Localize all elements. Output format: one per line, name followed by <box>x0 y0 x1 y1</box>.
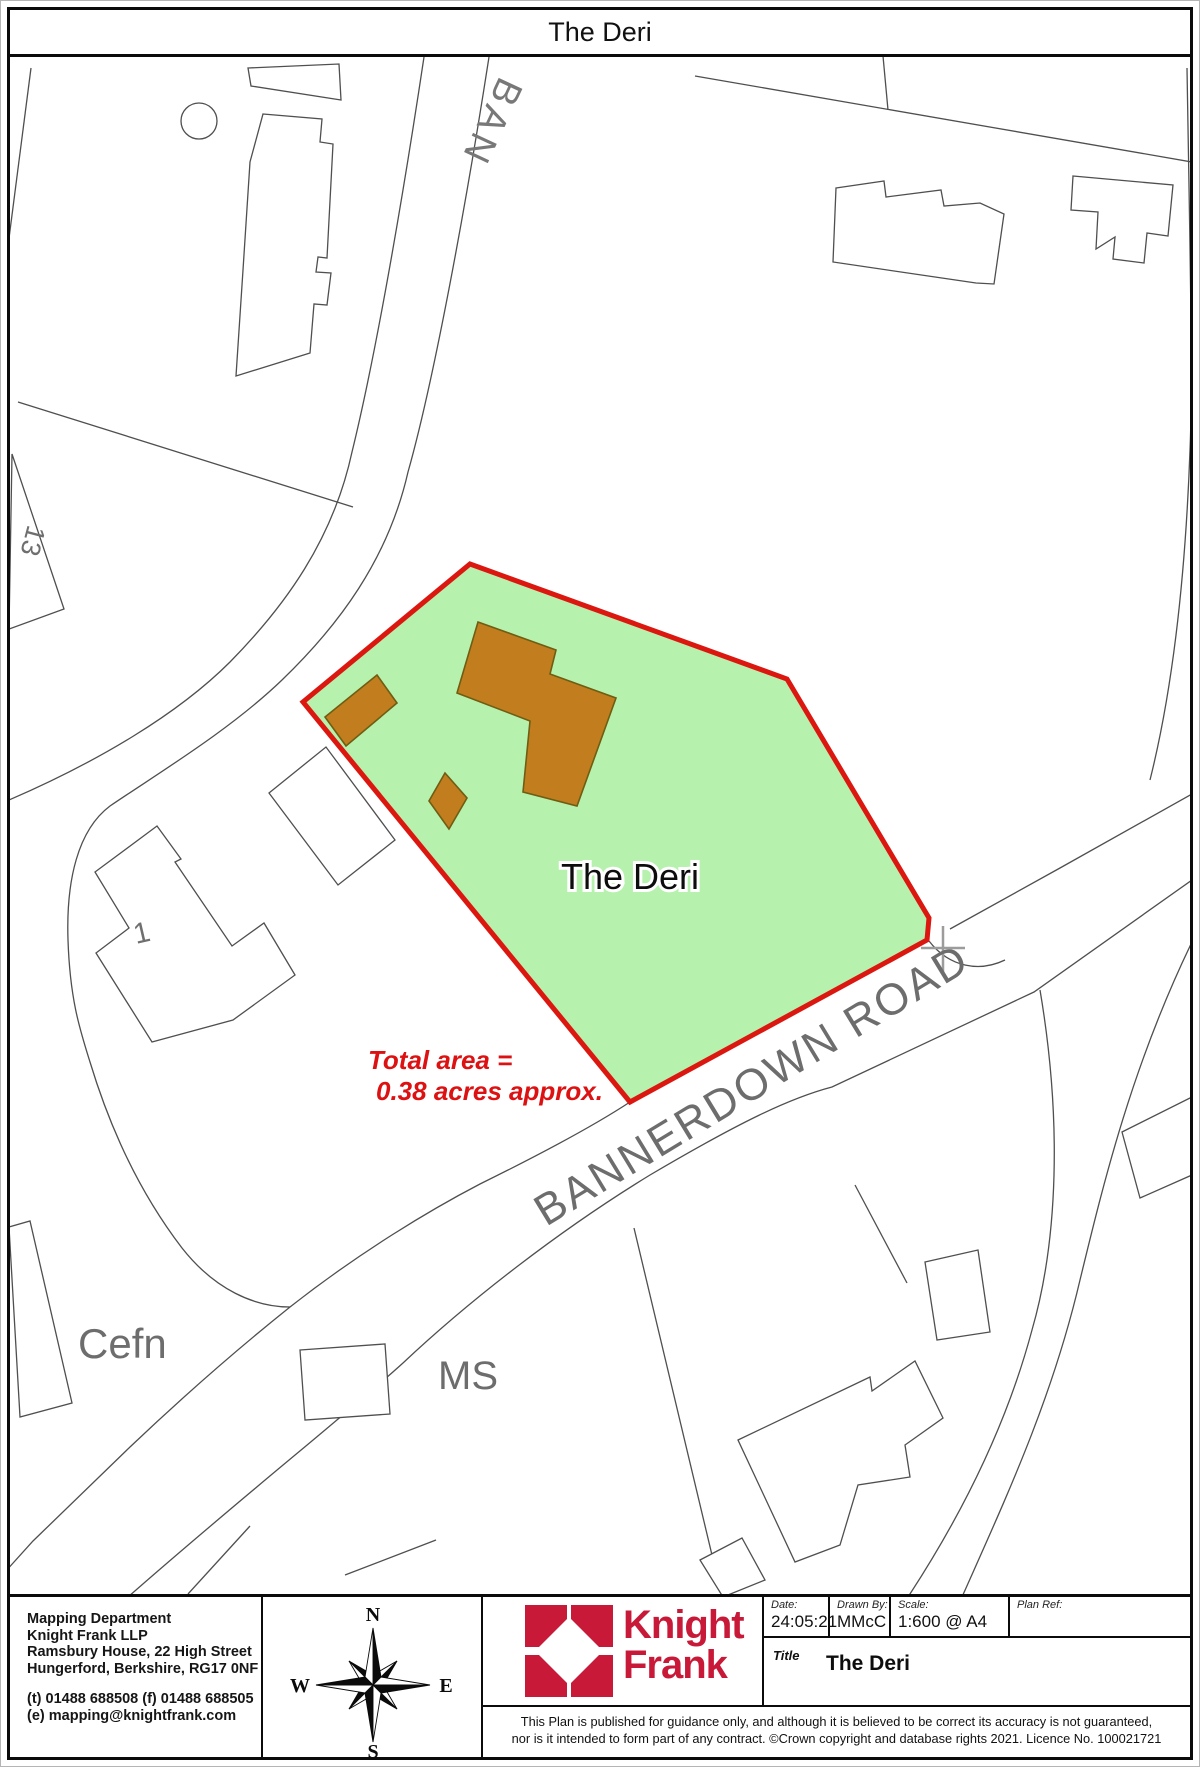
plan-info-row: Date: 24:05:21 Drawn By: MMcC Scale: 1:6… <box>764 1597 1190 1638</box>
disclaimer-line1: This Plan is published for guidance only… <box>483 1713 1190 1730</box>
date-label: Date: <box>771 1599 828 1611</box>
address-line: Hungerford, Berkshire, RG17 0NF <box>27 1661 261 1678</box>
title-field-label: Title <box>773 1648 800 1663</box>
drawn-by-label: Drawn By: <box>837 1599 889 1611</box>
compass-n-label: N <box>366 1604 381 1626</box>
disclaimer: This Plan is published for guidance only… <box>483 1705 1190 1760</box>
date-value: 24:05:21 <box>771 1612 828 1632</box>
footer-right: Knight Frank Date: 24:05:21 Drawn By: MM… <box>483 1597 1190 1760</box>
scale-label: Scale: <box>898 1599 1008 1611</box>
contact-line: (t) 01488 688508 (f) 01488 688505 <box>27 1691 261 1708</box>
disclaimer-line2: nor is it intended to form part of any c… <box>483 1730 1190 1747</box>
scale-field: Scale: 1:600 @ A4 <box>891 1597 1010 1636</box>
address-line: Ramsbury House, 22 High Street <box>27 1644 261 1661</box>
compass-w-label: W <box>290 1675 310 1697</box>
mapping-department-address: Mapping Department Knight Frank LLP Rams… <box>10 1597 263 1760</box>
site-plan-map: BAN 13 1 The Deri Total area = 0.38 acre… <box>10 57 1190 1594</box>
house-1-outline <box>95 826 295 1042</box>
address-gap <box>27 1677 261 1691</box>
property-name-label: The Deri <box>561 856 699 897</box>
address-line: Knight Frank LLP <box>27 1628 261 1645</box>
knight-frank-mark-icon <box>525 1605 613 1697</box>
total-area-line2: 0.38 acres approx. <box>376 1076 603 1106</box>
logo-line2: Frank <box>623 1645 744 1685</box>
knight-frank-logo: Knight Frank <box>483 1597 764 1705</box>
drawn-by-value: MMcC <box>837 1612 889 1632</box>
compass-rose-icon: N S E W <box>263 1597 483 1759</box>
date-field: Date: 24:05:21 <box>764 1597 830 1636</box>
address-line: Mapping Department <box>27 1611 261 1628</box>
map-area: BAN 13 1 The Deri Total area = 0.38 acre… <box>10 57 1190 1594</box>
compass-e-label: E <box>439 1675 452 1697</box>
footer: Mapping Department Knight Frank LLP Rams… <box>10 1594 1190 1760</box>
plan-info-table: Date: 24:05:21 Drawn By: MMcC Scale: 1:6… <box>764 1597 1190 1705</box>
drawn-by-field: Drawn By: MMcC <box>830 1597 891 1636</box>
scale-value: 1:600 @ A4 <box>898 1612 1008 1632</box>
plan-page: BAN 13 1 The Deri Total area = 0.38 acre… <box>0 0 1200 1767</box>
tree-circle <box>181 103 217 139</box>
total-area-line1: Total area = <box>368 1045 512 1075</box>
plan-ref-label: Plan Ref: <box>1017 1599 1190 1611</box>
title-row: Title The Deri <box>764 1638 1190 1705</box>
road-label-top: BAN <box>452 71 529 173</box>
ms-label: MS <box>438 1354 498 1398</box>
page-title: The Deri <box>10 10 1190 57</box>
contact-line: (e) mapping@knightfrank.com <box>27 1708 261 1725</box>
footer-right-top: Knight Frank Date: 24:05:21 Drawn By: MM… <box>483 1597 1190 1705</box>
cefn-label: Cefn <box>78 1320 167 1367</box>
plan-ref-field: Plan Ref: <box>1010 1597 1190 1636</box>
compass-cell: N S E W <box>263 1597 483 1760</box>
logo-wordmark: Knight Frank <box>623 1605 744 1685</box>
logo-line1: Knight <box>623 1605 744 1645</box>
title-field-value: The Deri <box>826 1652 910 1676</box>
compass-s-label: S <box>367 1741 378 1759</box>
